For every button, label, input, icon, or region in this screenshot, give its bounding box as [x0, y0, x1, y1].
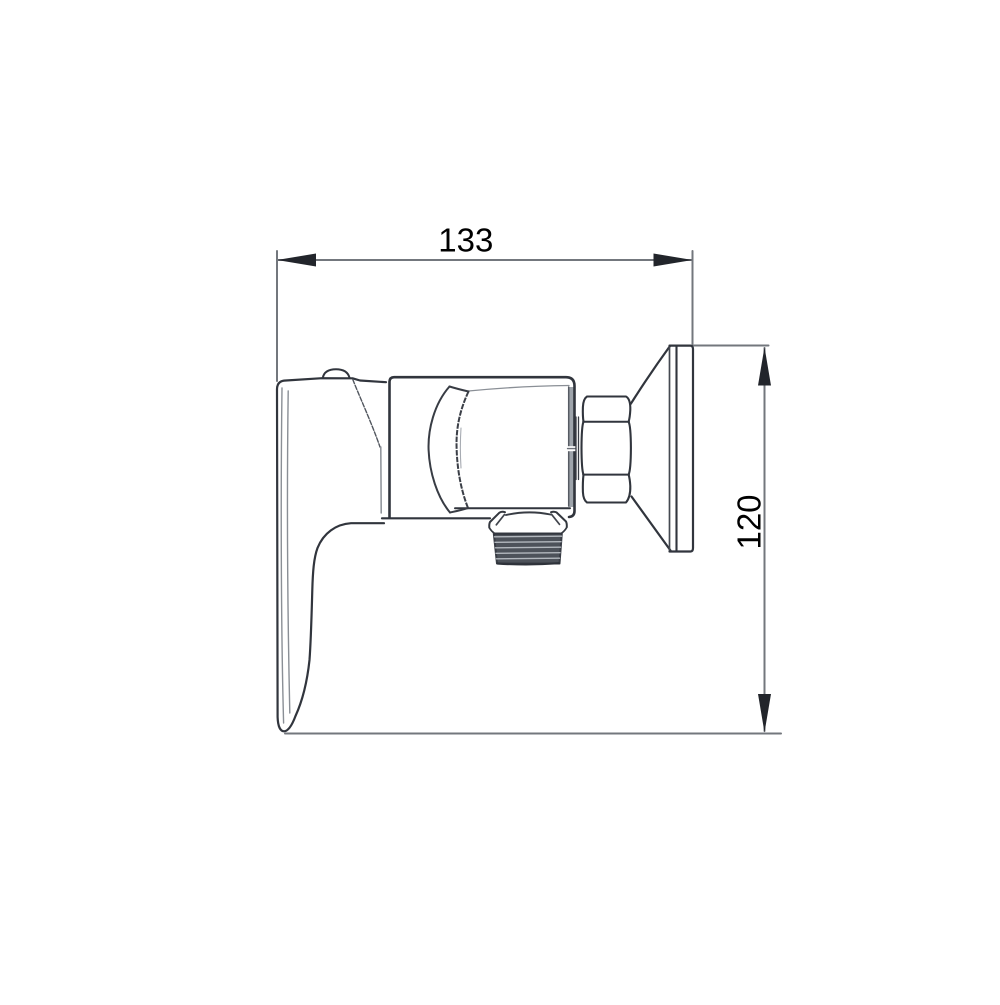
svg-text:133: 133 [438, 222, 493, 259]
svg-text:120: 120 [731, 494, 768, 549]
